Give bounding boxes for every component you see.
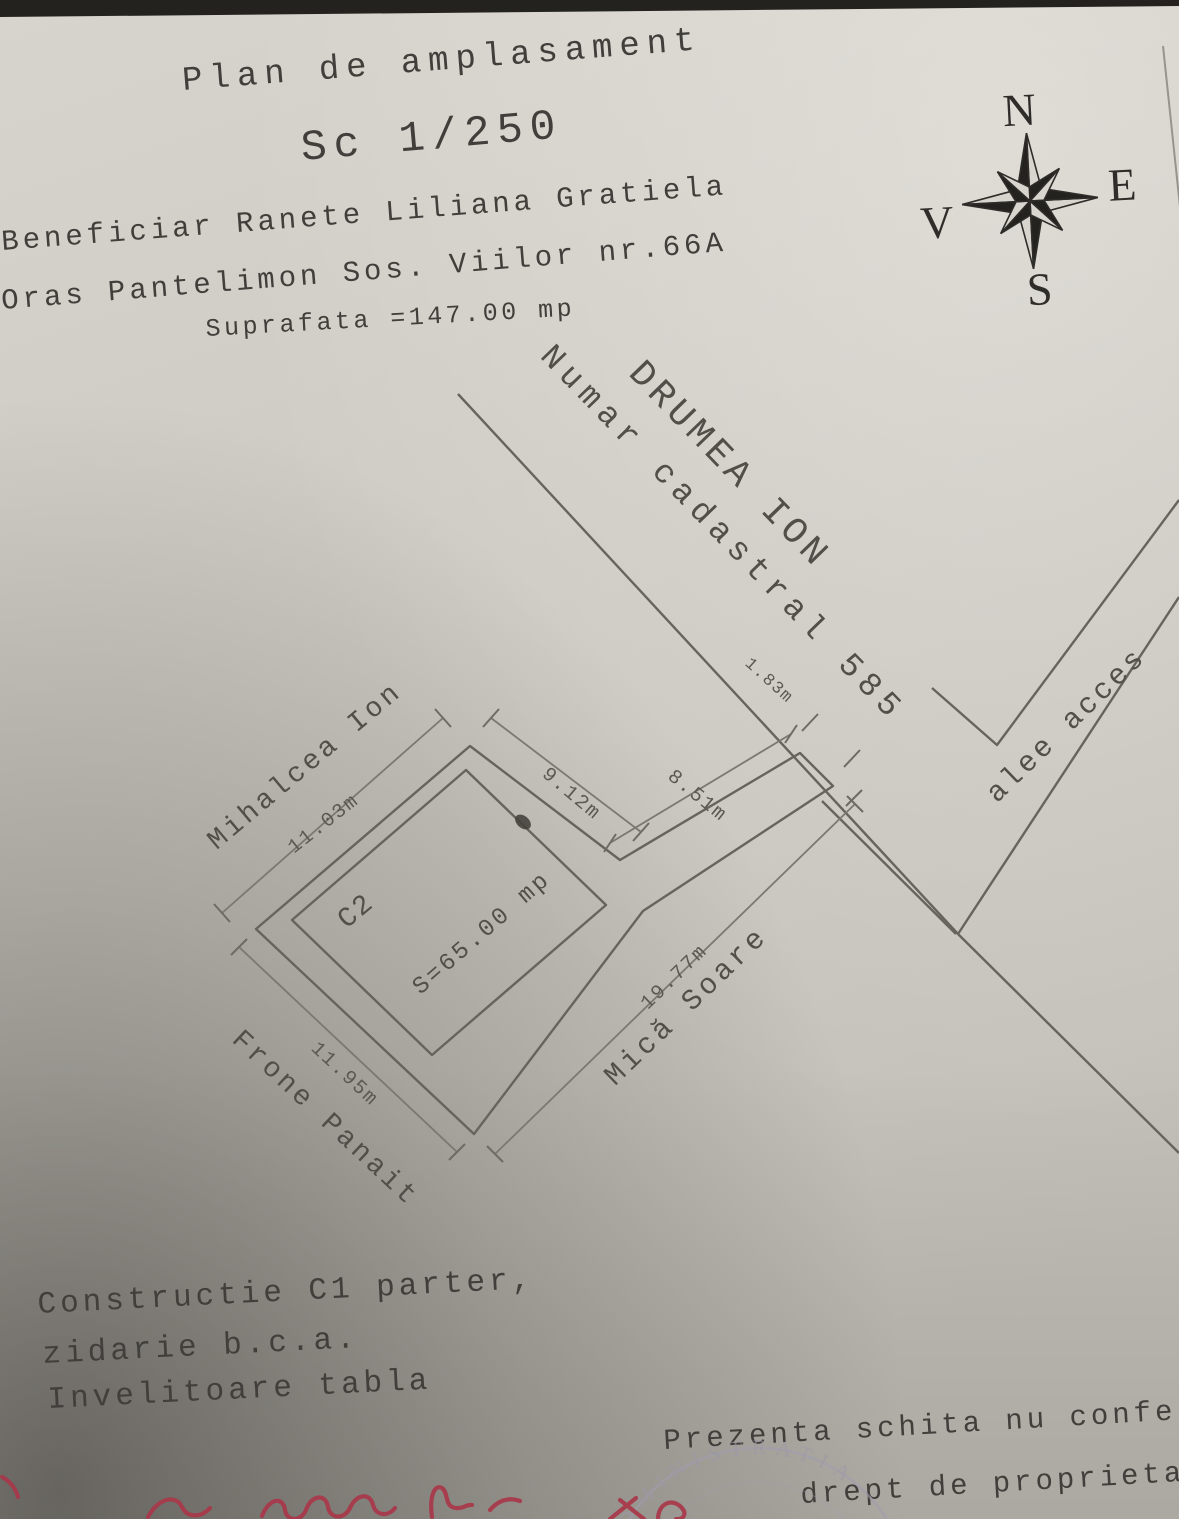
compass-v-label: V — [919, 196, 955, 249]
site-plan-canvas: Plan de amplasament Sc 1/250 Beneficiar … — [0, 0, 1179, 1519]
scanned-document: Plan de amplasament Sc 1/250 Beneficiar … — [0, 0, 1179, 1519]
compass-s-label: S — [1026, 263, 1054, 315]
compass-n-label: N — [1001, 84, 1037, 137]
compass-e-label: E — [1107, 158, 1138, 210]
